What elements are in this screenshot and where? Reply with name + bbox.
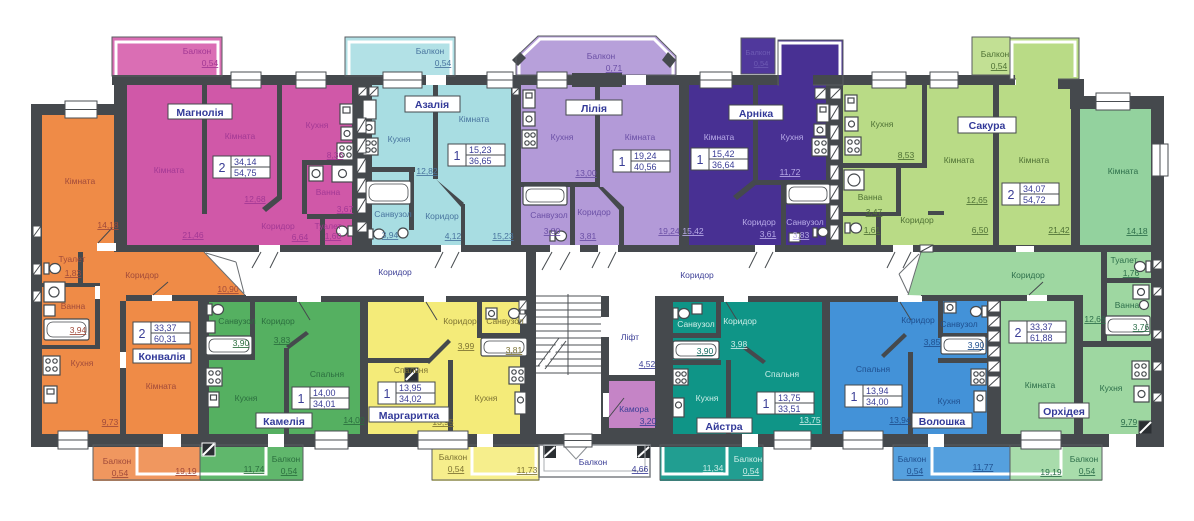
svg-text:Балкон: Балкон (579, 457, 608, 467)
svg-text:Магнолія: Магнолія (176, 107, 223, 119)
svg-text:1,83: 1,83 (65, 268, 82, 278)
svg-text:0,54: 0,54 (991, 61, 1008, 71)
svg-text:Санвузол: Санвузол (218, 316, 256, 326)
svg-text:0,54: 0,54 (907, 466, 924, 476)
svg-text:Спальня: Спальня (394, 365, 429, 375)
svg-text:3,47: 3,47 (866, 207, 883, 217)
svg-text:0,54: 0,54 (743, 466, 760, 476)
svg-text:Кухня: Кухня (475, 393, 498, 403)
svg-text:Кімната: Кімната (1108, 166, 1139, 176)
svg-text:14,00: 14,00 (313, 388, 336, 398)
svg-text:Кімната: Кімната (944, 155, 975, 165)
svg-text:Коридор: Коридор (443, 316, 477, 326)
svg-text:11,73: 11,73 (517, 465, 538, 475)
svg-text:11,74: 11,74 (244, 464, 265, 474)
svg-text:14,18: 14,18 (97, 220, 119, 230)
svg-text:3,90: 3,90 (233, 338, 250, 348)
svg-text:Азалія: Азалія (415, 99, 449, 111)
svg-text:Балкон: Балкон (898, 454, 927, 464)
svg-text:3,94: 3,94 (382, 230, 399, 240)
svg-text:4,66: 4,66 (632, 464, 649, 474)
svg-text:Камора: Камора (619, 404, 649, 414)
svg-text:3,67: 3,67 (337, 204, 354, 214)
svg-text:3,81: 3,81 (506, 345, 523, 355)
svg-text:Балкон: Балкон (745, 48, 770, 57)
svg-text:13,75: 13,75 (799, 415, 821, 425)
svg-text:19,24: 19,24 (658, 226, 680, 236)
svg-text:36,64: 36,64 (712, 160, 735, 170)
svg-text:13,94: 13,94 (889, 415, 911, 425)
svg-text:33,51: 33,51 (778, 404, 801, 414)
svg-text:1,61: 1,61 (864, 225, 881, 235)
svg-text:1: 1 (384, 387, 391, 401)
svg-text:Ванна: Ванна (858, 192, 883, 202)
svg-text:2: 2 (1015, 326, 1022, 340)
svg-text:Коридор: Коридор (378, 267, 412, 277)
svg-text:11,72: 11,72 (780, 167, 801, 177)
svg-text:34,01: 34,01 (313, 399, 336, 409)
svg-text:34,02: 34,02 (399, 394, 422, 404)
svg-text:Кімната: Кімната (146, 381, 177, 391)
svg-text:3,90: 3,90 (968, 340, 985, 350)
svg-text:3,98: 3,98 (731, 339, 748, 349)
svg-text:1: 1 (619, 155, 626, 169)
svg-text:21,46: 21,46 (182, 230, 204, 240)
svg-text:Кімната: Кімната (154, 165, 185, 175)
svg-text:Санвузол: Санвузол (530, 210, 568, 220)
svg-text:3,99: 3,99 (458, 341, 475, 351)
svg-text:Спальня: Спальня (310, 369, 345, 379)
svg-text:Маргаритка: Маргаритка (379, 410, 440, 422)
svg-text:15,23: 15,23 (469, 145, 492, 155)
svg-text:12,66: 12,66 (1084, 314, 1106, 324)
svg-text:Ванна: Ванна (1115, 300, 1140, 310)
svg-text:1,60: 1,60 (325, 231, 342, 241)
svg-text:8,36: 8,36 (327, 150, 344, 160)
svg-text:Камелія: Камелія (263, 416, 305, 428)
svg-text:Балкон: Балкон (416, 46, 445, 56)
svg-text:Балкон: Балкон (272, 454, 301, 464)
svg-text:15,23: 15,23 (492, 231, 514, 241)
svg-text:Кухня: Кухня (388, 134, 411, 144)
svg-text:8,53: 8,53 (898, 150, 915, 160)
svg-text:19,19: 19,19 (175, 466, 197, 476)
svg-text:Балкон: Балкон (734, 454, 763, 464)
svg-text:Кімната: Кімната (1025, 380, 1056, 390)
svg-text:Ванна: Ванна (316, 187, 341, 197)
svg-text:Лілія: Лілія (581, 103, 607, 115)
svg-text:1: 1 (697, 153, 704, 167)
svg-text:Кімната: Кімната (65, 176, 96, 186)
svg-text:Кухня: Кухня (235, 393, 258, 403)
svg-text:13,75: 13,75 (778, 393, 801, 403)
svg-text:54,72: 54,72 (1023, 195, 1046, 205)
svg-text:Коридор: Коридор (425, 211, 459, 221)
svg-text:Спальня: Спальня (856, 364, 891, 374)
svg-text:Кімната: Кімната (704, 132, 735, 142)
svg-text:12,82: 12,82 (416, 166, 438, 176)
svg-text:11,34: 11,34 (703, 463, 724, 473)
svg-text:3,85: 3,85 (924, 337, 941, 347)
svg-text:36,65: 36,65 (469, 156, 492, 166)
svg-text:0,54: 0,54 (1079, 466, 1096, 476)
svg-text:Кухня: Кухня (306, 120, 329, 130)
svg-text:Айстра: Айстра (705, 421, 742, 433)
svg-text:14,00: 14,00 (343, 415, 365, 425)
svg-text:Коридор: Коридор (723, 316, 757, 326)
svg-text:1: 1 (763, 397, 770, 411)
svg-text:Сакура: Сакура (969, 120, 1006, 132)
svg-text:3,20: 3,20 (640, 416, 657, 426)
svg-text:3,83: 3,83 (274, 335, 291, 345)
svg-text:Ванна: Ванна (61, 301, 86, 311)
svg-text:Конвалія: Конвалія (138, 351, 185, 363)
svg-text:14,18: 14,18 (1126, 226, 1148, 236)
svg-text:Кухня: Кухня (781, 132, 804, 142)
svg-text:6,50: 6,50 (972, 225, 989, 235)
svg-text:Балкон: Балкон (103, 456, 132, 466)
svg-text:Балкон: Балкон (1070, 454, 1099, 464)
svg-text:13,94: 13,94 (866, 386, 889, 396)
svg-text:Коридор: Коридор (125, 270, 159, 280)
svg-text:Коридор: Коридор (577, 207, 611, 217)
svg-text:Кухня: Кухня (551, 132, 574, 142)
svg-text:Коридор: Коридор (1011, 270, 1045, 280)
svg-text:0,71: 0,71 (606, 63, 623, 73)
svg-text:34,07: 34,07 (1023, 184, 1046, 194)
svg-text:Кухня: Кухня (696, 393, 719, 403)
svg-text:Коридор: Коридор (680, 270, 714, 280)
svg-text:21,42: 21,42 (1048, 225, 1070, 235)
svg-text:1: 1 (851, 390, 858, 404)
svg-text:60,31: 60,31 (154, 334, 177, 344)
svg-text:Санвузол: Санвузол (786, 217, 824, 227)
svg-text:0,54: 0,54 (754, 59, 769, 68)
svg-text:Туалет: Туалет (315, 221, 342, 231)
svg-text:Санвузол: Санвузол (940, 319, 978, 329)
svg-text:Кімната: Кімната (225, 131, 256, 141)
svg-text:Коридор: Коридор (742, 217, 776, 227)
svg-text:2: 2 (219, 161, 226, 175)
svg-text:2: 2 (139, 327, 146, 341)
svg-text:1,76: 1,76 (1123, 268, 1140, 278)
svg-text:Орхідея: Орхідея (1043, 406, 1085, 418)
svg-text:1: 1 (454, 149, 461, 163)
svg-text:2: 2 (1008, 188, 1015, 202)
svg-text:3,76: 3,76 (1133, 322, 1150, 332)
svg-text:Коридор: Коридор (901, 315, 935, 325)
svg-text:4,12: 4,12 (445, 231, 462, 241)
svg-text:Кухня: Кухня (938, 396, 961, 406)
svg-text:3,80: 3,80 (544, 226, 561, 236)
svg-text:9,73: 9,73 (102, 417, 119, 427)
svg-text:19,19: 19,19 (1040, 467, 1062, 477)
svg-text:3,90: 3,90 (697, 346, 714, 356)
svg-text:Санвузол: Санвузол (374, 209, 412, 219)
svg-text:15,42: 15,42 (712, 149, 735, 159)
svg-text:0,54: 0,54 (112, 468, 129, 478)
svg-text:Коридор: Коридор (261, 221, 295, 231)
svg-text:0,54: 0,54 (281, 466, 298, 476)
svg-text:0,54: 0,54 (202, 58, 219, 68)
svg-text:34,00: 34,00 (866, 397, 889, 407)
svg-text:1: 1 (298, 392, 305, 406)
svg-text:3,61: 3,61 (760, 229, 777, 239)
svg-text:11,77: 11,77 (973, 462, 994, 472)
svg-text:Балкон: Балкон (439, 452, 468, 462)
svg-text:33,37: 33,37 (1030, 322, 1053, 332)
svg-text:3,81: 3,81 (580, 231, 597, 241)
svg-text:Балкон: Балкон (183, 46, 212, 56)
svg-text:0,54: 0,54 (448, 464, 465, 474)
svg-text:40,56: 40,56 (634, 162, 657, 172)
svg-text:19,24: 19,24 (634, 151, 657, 161)
svg-text:10,90: 10,90 (217, 284, 239, 294)
svg-text:Туалет: Туалет (1111, 255, 1138, 265)
svg-text:12,68: 12,68 (244, 194, 266, 204)
svg-text:33,37: 33,37 (154, 323, 177, 333)
svg-text:12,65: 12,65 (966, 195, 988, 205)
svg-text:15,42: 15,42 (682, 226, 704, 236)
svg-text:Туалет: Туалет (59, 254, 86, 264)
svg-text:Кімната: Кімната (459, 114, 490, 124)
svg-text:13,00: 13,00 (575, 168, 597, 178)
svg-text:Кімната: Кімната (625, 132, 656, 142)
svg-text:Санвузол: Санвузол (677, 319, 715, 329)
svg-text:Спальня: Спальня (765, 369, 800, 379)
svg-text:Кухня: Кухня (71, 358, 94, 368)
svg-text:0,54: 0,54 (435, 58, 452, 68)
svg-text:Арніка: Арніка (739, 108, 774, 120)
svg-text:4,52: 4,52 (639, 359, 656, 369)
svg-text:3,83: 3,83 (793, 230, 810, 240)
svg-text:3,94: 3,94 (70, 325, 87, 335)
svg-text:61,88: 61,88 (1030, 333, 1053, 343)
svg-text:Кухня: Кухня (1100, 383, 1123, 393)
svg-text:34,14: 34,14 (234, 157, 257, 167)
svg-text:Коридор: Коридор (900, 215, 934, 225)
svg-text:Коридор: Коридор (261, 316, 295, 326)
svg-text:Балкон: Балкон (981, 49, 1010, 59)
svg-text:6,64: 6,64 (292, 232, 309, 242)
svg-text:Санвузол: Санвузол (486, 316, 524, 326)
svg-text:Кімната: Кімната (1019, 155, 1050, 165)
svg-text:Балкон: Балкон (587, 51, 616, 61)
svg-text:Ліфт: Ліфт (621, 332, 639, 342)
svg-text:54,75: 54,75 (234, 168, 257, 178)
svg-text:13,95: 13,95 (399, 383, 422, 393)
svg-text:9,79: 9,79 (1121, 417, 1138, 427)
svg-text:Волошка: Волошка (919, 416, 966, 428)
svg-text:Кухня: Кухня (871, 119, 894, 129)
